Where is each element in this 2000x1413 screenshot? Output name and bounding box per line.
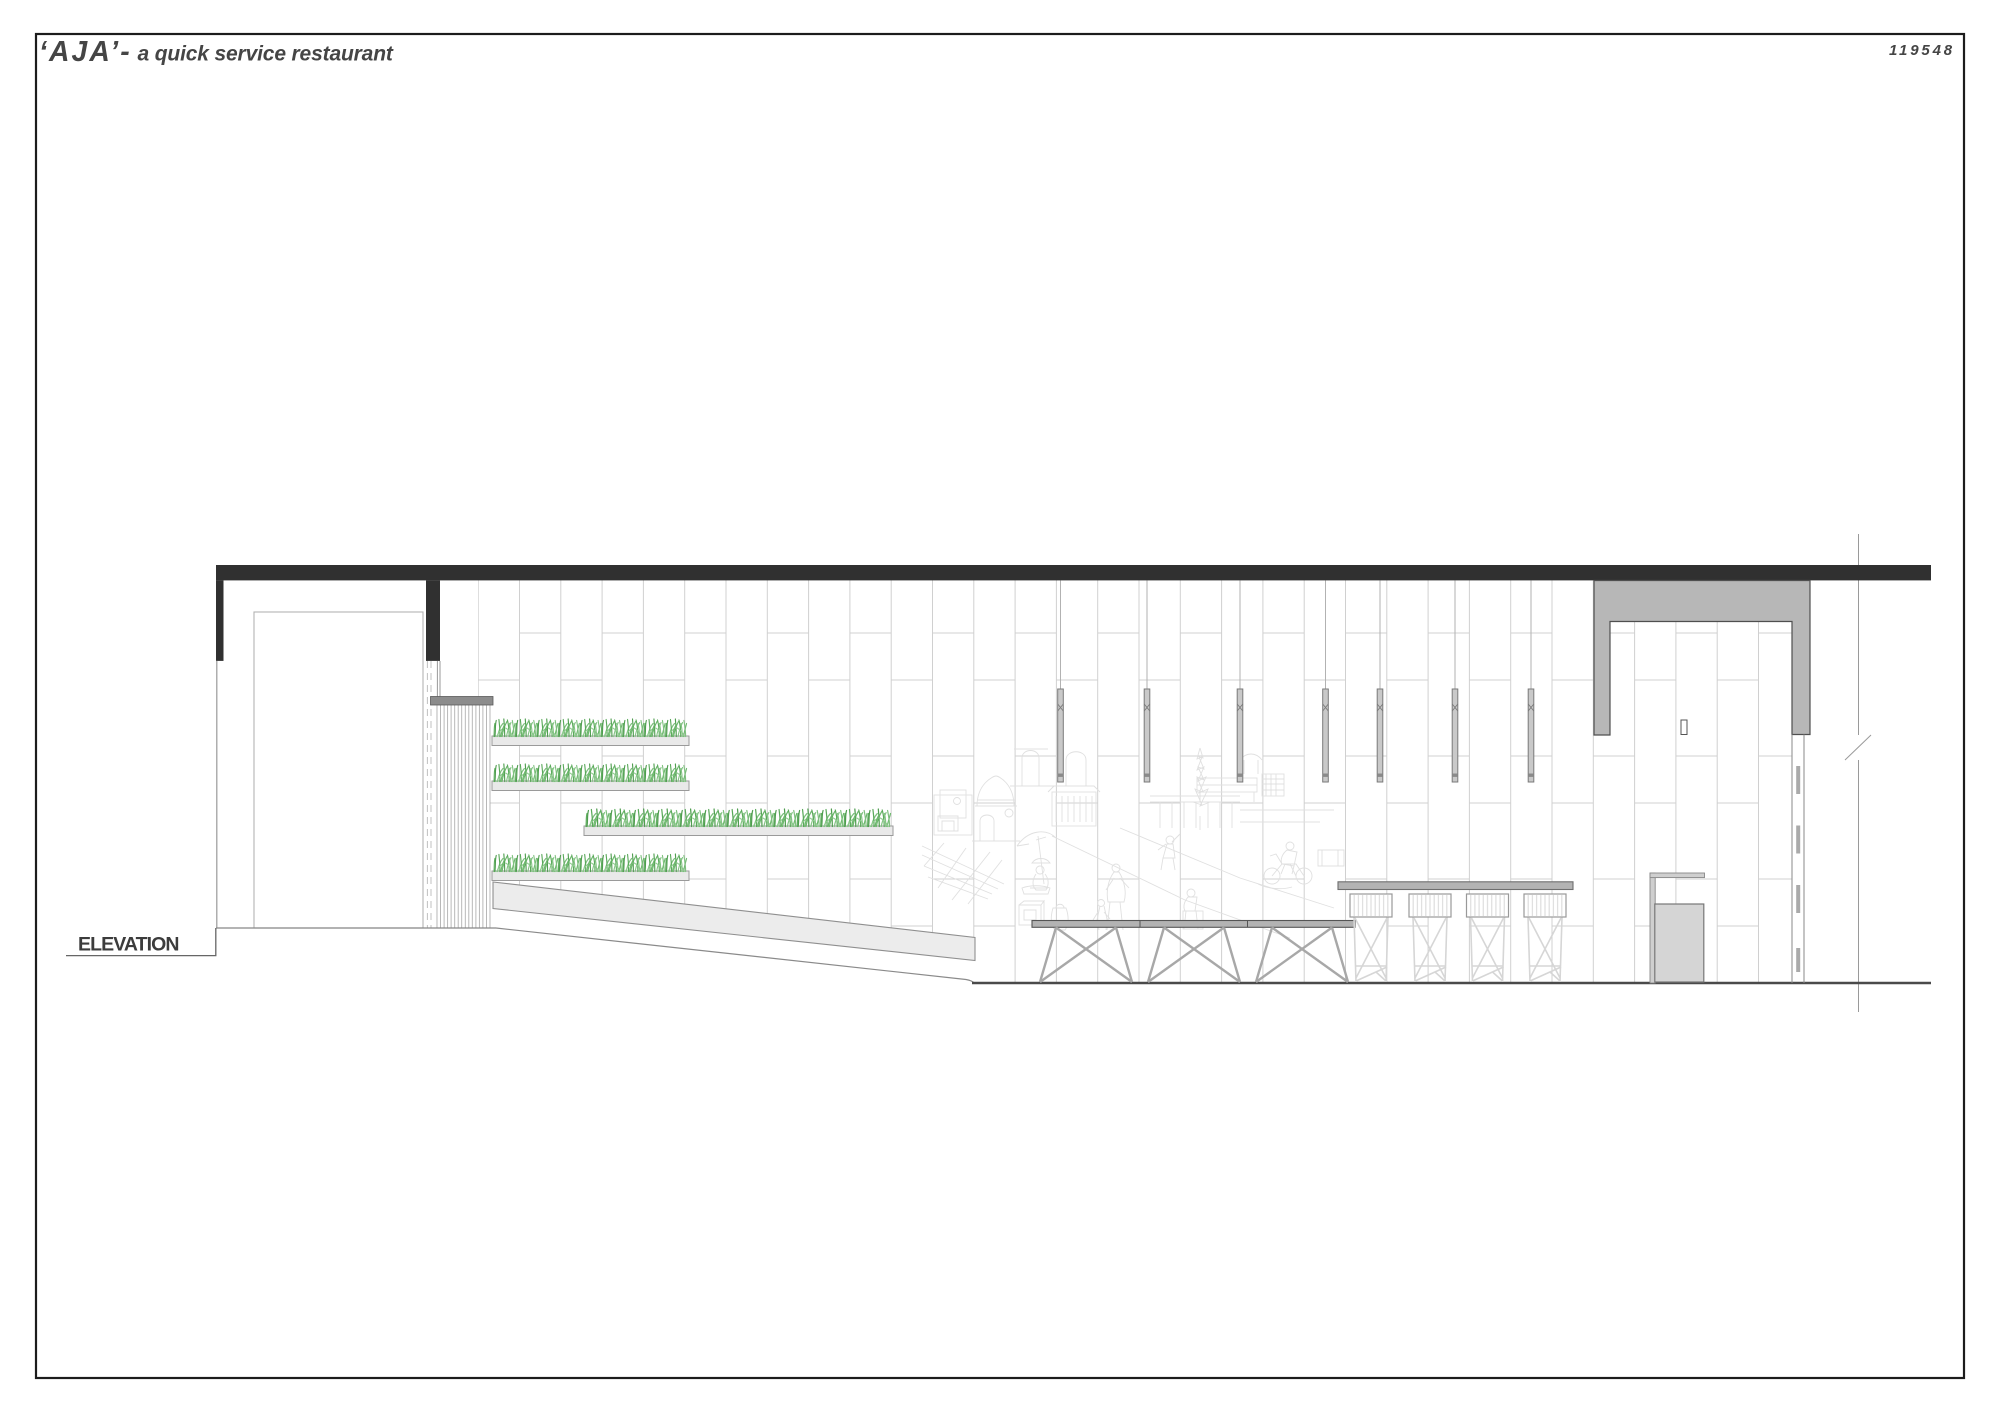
svg-text:ELEVATION: ELEVATION: [78, 934, 179, 956]
svg-text:‘AJA’-: ‘AJA’-: [39, 35, 132, 67]
svg-text:119548: 119548: [1889, 42, 1955, 59]
svg-text:a quick service restaurant: a quick service restaurant: [138, 43, 394, 66]
